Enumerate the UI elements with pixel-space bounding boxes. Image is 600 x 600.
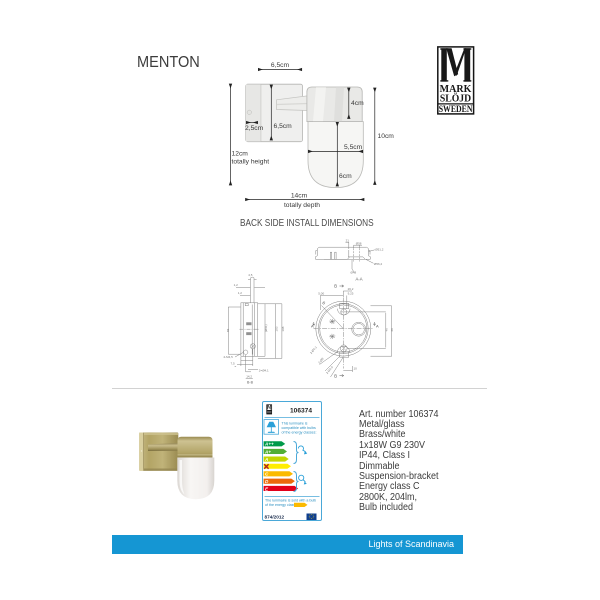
svg-text:of the energy classes:: of the energy classes:: [282, 431, 317, 435]
svg-text:2-M4,5: 2-M4,5: [224, 355, 234, 359]
svg-text:Ø56,2: Ø56,2: [374, 262, 383, 266]
svg-text:Ø51,2: Ø51,2: [375, 248, 384, 252]
svg-text:106374: 106374: [290, 407, 312, 414]
svg-text:The luminaire is sold with a b: The luminaire is sold with a bulb: [265, 499, 316, 503]
svg-text:1,2: 1,2: [234, 283, 239, 287]
svg-text:A: A: [311, 324, 314, 329]
svg-text:A++: A++: [264, 442, 274, 447]
svg-text:14,2: 14,2: [246, 375, 252, 379]
svg-text:B: B: [334, 373, 337, 378]
svg-text:46: 46: [384, 328, 388, 332]
svg-text:2-Ø4,1: 2-Ø4,1: [309, 345, 318, 355]
svg-text:A: A: [376, 324, 379, 329]
svg-text:Ø58: Ø58: [356, 241, 362, 245]
svg-text:103: 103: [275, 326, 279, 331]
svg-text:of the energy class:: of the energy class:: [265, 503, 296, 507]
svg-text:=: =: [235, 365, 237, 369]
svg-text:9,25: 9,25: [348, 291, 354, 295]
svg-text:A-A: A-A: [356, 277, 363, 282]
svg-text:60: 60: [390, 328, 394, 332]
svg-text:2-Ø8: 2-Ø8: [317, 357, 325, 365]
svg-text:21: 21: [346, 239, 350, 243]
svg-text:108: 108: [281, 326, 285, 331]
svg-text:1,2: 1,2: [238, 291, 243, 295]
svg-text:10: 10: [354, 367, 358, 371]
svg-text:A+: A+: [264, 449, 271, 454]
svg-text:B: B: [321, 300, 327, 306]
svg-text:874/2012: 874/2012: [265, 515, 285, 520]
svg-text:A: A: [264, 457, 268, 462]
svg-text:4,5: 4,5: [248, 273, 253, 277]
svg-text:compatible with bulbs: compatible with bulbs: [282, 426, 317, 430]
svg-text:B-B: B-B: [247, 380, 254, 384]
svg-text:(Ø61): (Ø61): [264, 324, 268, 332]
svg-text:2=Ø4,1: 2=Ø4,1: [259, 369, 269, 373]
svg-text:86: 86: [226, 328, 230, 332]
svg-text:5,00: 5,00: [318, 291, 324, 295]
svg-text:B: B: [334, 284, 337, 289]
svg-text:This luminaire is: This luminaire is: [282, 422, 308, 426]
